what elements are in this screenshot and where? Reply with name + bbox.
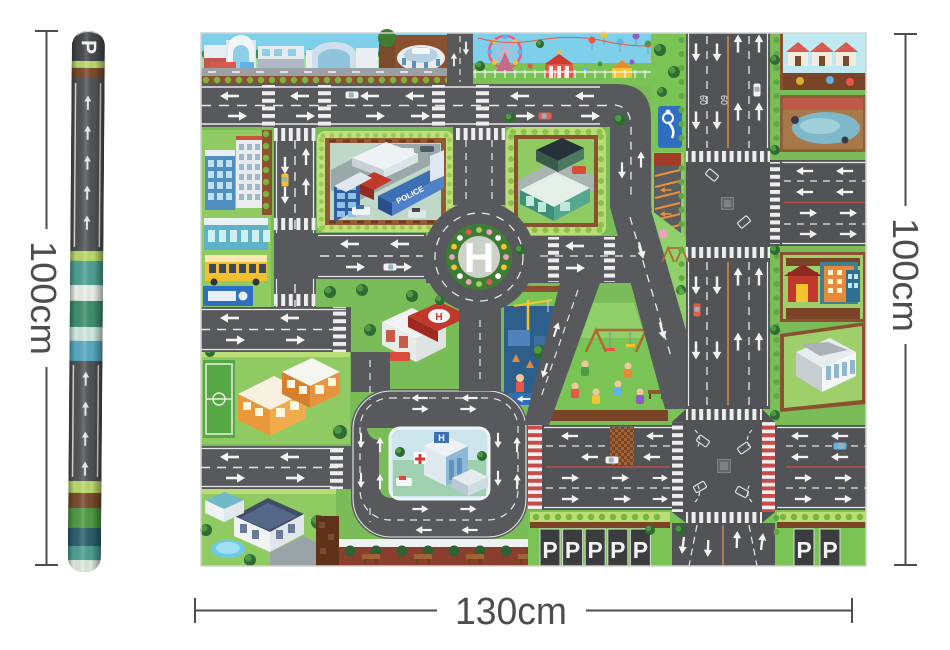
svg-text:100cm: 100cm (885, 218, 926, 332)
svg-text:P: P (633, 537, 648, 563)
svg-text:H: H (435, 312, 442, 323)
svg-text:P: P (822, 537, 837, 563)
svg-text:100cm: 100cm (23, 241, 64, 355)
svg-text:H: H (438, 433, 445, 443)
svg-text:130cm: 130cm (455, 591, 567, 633)
svg-text:P: P (542, 537, 557, 563)
svg-text:H: H (464, 234, 494, 281)
svg-text:P: P (796, 537, 811, 563)
svg-text:P: P (588, 537, 603, 563)
svg-text:60: 60 (719, 95, 729, 105)
svg-text:60: 60 (698, 95, 708, 105)
svg-text:P: P (565, 537, 580, 563)
svg-text:P: P (610, 537, 625, 563)
